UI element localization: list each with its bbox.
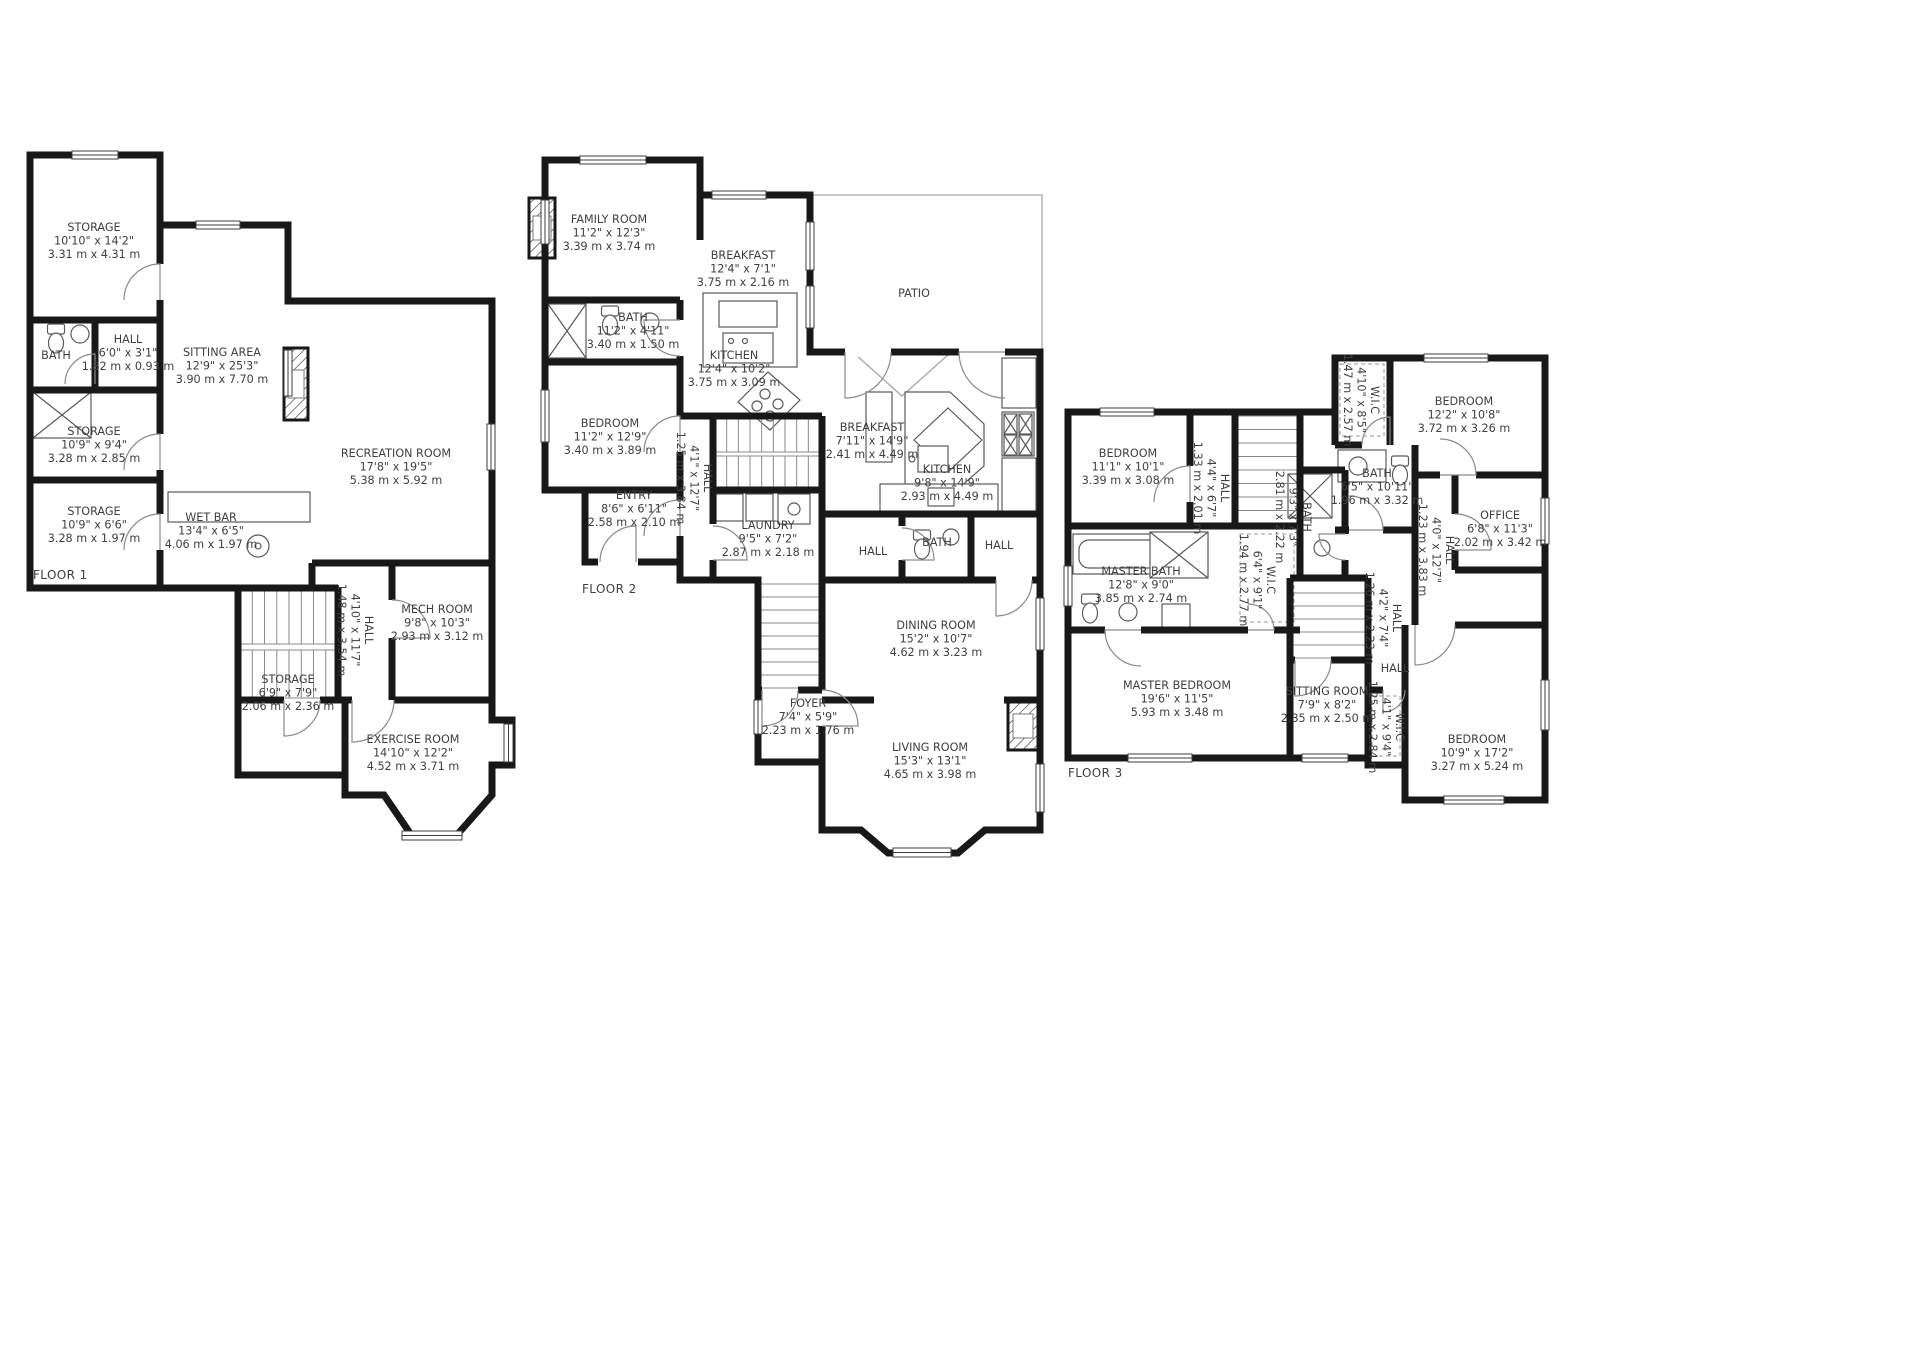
room-label-line: 7'9" x 8'2" bbox=[1298, 699, 1357, 712]
room-label-line: PATIO bbox=[898, 287, 930, 300]
room-label-line: 6'8" x 11'3" bbox=[1467, 523, 1533, 536]
room-label-line: LIVING ROOM bbox=[892, 741, 968, 754]
room-label-line: 15'2" x 10'7" bbox=[900, 633, 973, 646]
room-label-line: 11'1" x 10'1" bbox=[1092, 461, 1165, 474]
room-label-line: 4'2" x 7'4" bbox=[1377, 589, 1390, 648]
room-label-line: 11'2" x 12'3" bbox=[573, 227, 646, 240]
room-label-line: 6'4" x 9'1" bbox=[1251, 551, 1264, 610]
room-label-line: 10'9" x 6'6" bbox=[61, 519, 127, 532]
floor-2-label: FLOOR 2 bbox=[582, 582, 637, 596]
room-label-line: FAMILY ROOM bbox=[571, 213, 647, 226]
room-label-line: 2.93 m x 3.12 m bbox=[391, 630, 483, 643]
room-label-line: BATH bbox=[41, 349, 71, 362]
room-label-f3-office: OFFICE6'8" x 11'3"2.02 m x 3.42 m bbox=[1454, 509, 1546, 549]
room-label-line: 4.62 m x 3.23 m bbox=[890, 646, 982, 659]
room-label-line: EXERCISE ROOM bbox=[367, 733, 460, 746]
room-label-line: 5.38 m x 5.92 m bbox=[350, 474, 442, 487]
room-label-line: 4.52 m x 3.71 m bbox=[367, 760, 459, 773]
room-label-line: 9'8" x 14'9" bbox=[914, 477, 980, 490]
room-label-f2-breakfast-b: BREAKFAST7'11" x 14'9"2.41 m x 4.49 m bbox=[826, 421, 918, 461]
room-label-f3-bedroom-c: BEDROOM10'9" x 17'2"3.27 m x 5.24 m bbox=[1431, 733, 1523, 773]
room-label-line: 1.25 m x 3.84 m bbox=[674, 432, 687, 524]
room-label-line: HALL bbox=[701, 464, 714, 493]
room-label-line: 4'10" x 8'5" bbox=[1355, 367, 1368, 433]
room-label-f1-sitting: SITTING AREA12'9" x 25'3"3.90 m x 7.70 m bbox=[176, 346, 268, 386]
room-label-line: BEDROOM bbox=[581, 417, 639, 430]
room-label-line: BATH bbox=[618, 311, 648, 324]
room-label-line: 9'8" x 10'3" bbox=[404, 617, 470, 630]
room-label-line: 3.75 m x 3.09 m bbox=[688, 376, 780, 389]
room-label-line: 9'5" x 7'2" bbox=[739, 533, 798, 546]
room-label-line: HALL bbox=[1381, 662, 1410, 675]
room-label-line: 17'8" x 19'5" bbox=[360, 461, 433, 474]
room-label-line: 6'0" x 3'1" bbox=[99, 347, 158, 360]
room-label-line: 4.65 m x 3.98 m bbox=[884, 768, 976, 781]
room-label-line: ENTRY bbox=[616, 489, 652, 502]
room-label-line: 7'11" x 14'9" bbox=[836, 435, 909, 448]
room-label-line: 3.39 m x 3.08 m bbox=[1082, 474, 1174, 487]
room-label-line: HALL bbox=[985, 539, 1014, 552]
room-label-f2-breakfast-a: BREAKFAST12'4" x 7'1"3.75 m x 2.16 m bbox=[697, 249, 789, 289]
room-label-line: 2.81 m x 2.22 m bbox=[1273, 471, 1286, 563]
room-label-line: 2.87 m x 2.18 m bbox=[722, 546, 814, 559]
room-label-line: RECREATION ROOM bbox=[341, 447, 451, 460]
room-label-f2-entry: ENTRY8'6" x 6'11"2.58 m x 2.10 m bbox=[588, 489, 680, 529]
room-label-f1-storage-c: STORAGE10'9" x 6'6"3.28 m x 1.97 m bbox=[48, 505, 140, 545]
room-label-line: STORAGE bbox=[261, 673, 314, 686]
room-label-line: W.I.C bbox=[1264, 566, 1277, 594]
room-label-f3-bedroom-a: BEDROOM11'1" x 10'1"3.39 m x 3.08 m bbox=[1082, 447, 1174, 487]
room-label-f2-bath-b: BATH bbox=[922, 536, 952, 549]
room-label-line: 10'9" x 17'2" bbox=[1441, 747, 1514, 760]
room-label-f3-bedroom-b: BEDROOM12'2" x 10'8"3.72 m x 3.26 m bbox=[1418, 395, 1510, 435]
room-label-f3-wic-b: W.I.C6'4" x 9'1"1.94 m x 2.77 m bbox=[1237, 534, 1277, 626]
room-label-line: 2.23 m x 1.76 m bbox=[762, 724, 854, 737]
room-label-line: MASTER BATH bbox=[1101, 565, 1180, 578]
room-label-line: W.I.C bbox=[1393, 713, 1406, 741]
room-label-line: 2.93 m x 4.49 m bbox=[901, 490, 993, 503]
room-label-line: 12'8" x 9'0" bbox=[1108, 579, 1174, 592]
room-label-line: 11'2" x 12'9" bbox=[574, 431, 647, 444]
room-label-f2-dining: DINING ROOM15'2" x 10'7"4.62 m x 3.23 m bbox=[890, 619, 982, 659]
room-label-line: 9'3" x 7'3" bbox=[1287, 488, 1300, 547]
room-label-line: 3.28 m x 2.85 m bbox=[48, 452, 140, 465]
room-label-line: 14'10" x 12'2" bbox=[373, 747, 453, 760]
room-label-line: KITCHEN bbox=[923, 463, 971, 476]
room-label-line: HALL bbox=[1443, 536, 1456, 565]
room-label-line: FOYER bbox=[790, 697, 827, 710]
room-label-line: 3.31 m x 4.31 m bbox=[48, 248, 140, 261]
room-label-line: 4'4" x 6'7" bbox=[1205, 459, 1218, 518]
room-label-line: 3.85 m x 2.74 m bbox=[1095, 592, 1187, 605]
room-label-line: 4'1" x 12'7" bbox=[688, 445, 701, 511]
room-label-f1-hall-b: HALL4'10" x 11'7"1.48 m x 3.54 m bbox=[335, 584, 375, 676]
room-label-line: MECH ROOM bbox=[401, 603, 473, 616]
room-label-line: HALL bbox=[362, 616, 375, 645]
room-label-line: 1.33 m x 2.01 m bbox=[1191, 442, 1204, 534]
room-label-line: BATH bbox=[1362, 467, 1392, 480]
room-label-f3-master-bath: MASTER BATH12'8" x 9'0"3.85 m x 2.74 m bbox=[1095, 565, 1187, 605]
room-label-f2-patio: PATIO bbox=[898, 287, 930, 300]
room-label-line: 1.25 m x 2.84 m bbox=[1366, 681, 1379, 773]
room-label-line: 1.23 m x 3.83 m bbox=[1416, 504, 1429, 596]
room-label-line: HALL bbox=[859, 545, 888, 558]
room-label-line: BREAKFAST bbox=[711, 249, 776, 262]
room-label-line: BATH bbox=[922, 536, 952, 549]
room-label-line: STORAGE bbox=[67, 505, 120, 518]
room-label-line: 4'1" x 9'4" bbox=[1380, 698, 1393, 757]
room-label-line: BEDROOM bbox=[1099, 447, 1157, 460]
room-label-f3-hall-a: HALL4'4" x 6'7"1.33 m x 2.01 m bbox=[1191, 442, 1231, 534]
room-label-line: SITTING AREA bbox=[183, 346, 261, 359]
room-label-line: 3.40 m x 1.50 m bbox=[587, 338, 679, 351]
room-label-line: OFFICE bbox=[1480, 509, 1520, 522]
room-label-line: 4.06 m x 1.97 m bbox=[165, 538, 257, 551]
room-label-line: 3.27 m x 5.24 m bbox=[1431, 760, 1523, 773]
room-label-f1-storage-a: STORAGE10'10" x 14'2"3.31 m x 4.31 m bbox=[48, 221, 140, 261]
room-label-line: 8'6" x 6'11" bbox=[601, 503, 667, 516]
floor-3-label: FLOOR 3 bbox=[1068, 766, 1123, 780]
room-label-line: HALL bbox=[1390, 604, 1403, 633]
room-label-line: 12'9" x 25'3" bbox=[186, 360, 259, 373]
room-label-line: 1.47 m x 2.57 m bbox=[1341, 354, 1354, 446]
room-label-line: HALL bbox=[1218, 474, 1231, 503]
room-label-line: 12'2" x 10'8" bbox=[1428, 409, 1501, 422]
room-label-line: 2.06 m x 2.36 m bbox=[242, 700, 334, 713]
room-label-f3-sitting: SITTING ROOM7'9" x 8'2"2.35 m x 2.50 m bbox=[1281, 685, 1373, 725]
room-label-line: BATH bbox=[1300, 502, 1313, 532]
room-label-line: KITCHEN bbox=[710, 349, 758, 362]
room-label-line: 12'4" x 10'2" bbox=[698, 363, 771, 376]
room-label-f2-hall-a: HALL bbox=[859, 545, 888, 558]
room-label-f2-hall-b: HALL bbox=[985, 539, 1014, 552]
room-label-f1-exercise: EXERCISE ROOM14'10" x 12'2"4.52 m x 3.71… bbox=[367, 733, 460, 773]
room-label-f2-living: LIVING ROOM15'3" x 13'1"4.65 m x 3.98 m bbox=[884, 741, 976, 781]
room-label-line: 2.41 m x 4.49 m bbox=[826, 448, 918, 461]
room-label-line: MASTER BEDROOM bbox=[1123, 679, 1231, 692]
room-label-f2-family: FAMILY ROOM11'2" x 12'3"3.39 m x 3.74 m bbox=[563, 213, 655, 253]
room-label-line: HALL bbox=[114, 333, 143, 346]
room-label-line: 10'9" x 9'4" bbox=[61, 439, 127, 452]
room-label-f2-laundry: LAUNDRY9'5" x 7'2"2.87 m x 2.18 m bbox=[722, 519, 814, 559]
room-label-line: 3.75 m x 2.16 m bbox=[697, 276, 789, 289]
room-label-line: STORAGE bbox=[67, 221, 120, 234]
room-label-line: DINING ROOM bbox=[896, 619, 975, 632]
room-label-line: 2.35 m x 2.50 m bbox=[1281, 712, 1373, 725]
room-label-line: 5.93 m x 3.48 m bbox=[1131, 706, 1223, 719]
room-label-line: BEDROOM bbox=[1435, 395, 1493, 408]
room-label-f3-hall-c: HALL4'2" x 7'4"1.26 m x 2.23 m bbox=[1363, 572, 1403, 664]
room-label-f2-hall-v: HALL4'1" x 12'7"1.25 m x 3.84 m bbox=[674, 432, 714, 524]
room-label-line: 3.28 m x 1.97 m bbox=[48, 532, 140, 545]
room-label-f3-wic-c: W.I.C4'1" x 9'4"1.25 m x 2.84 m bbox=[1366, 681, 1406, 773]
room-label-line: 2.02 m x 3.42 m bbox=[1454, 536, 1546, 549]
room-label-line: 3.90 m x 7.70 m bbox=[176, 373, 268, 386]
room-label-line: BEDROOM bbox=[1448, 733, 1506, 746]
floorplan-document: FLOOR 1 FLOOR 2 FLOOR 3 STORAGE10'10" x … bbox=[0, 0, 1920, 1358]
room-label-line: 10'10" x 14'2" bbox=[54, 235, 134, 248]
room-label-f1-storage-d: STORAGE6'9" x 7'9"2.06 m x 2.36 m bbox=[242, 673, 334, 713]
room-label-line: 7'4" x 5'9" bbox=[779, 711, 838, 724]
room-label-line: BREAKFAST bbox=[840, 421, 905, 434]
room-label-line: W.I.C bbox=[1368, 386, 1381, 414]
room-label-line: 4'10" x 11'7" bbox=[349, 594, 362, 667]
room-label-line: 1.96 m x 3.32 m bbox=[1331, 494, 1423, 507]
room-label-f3-wic-a: W.I.C4'10" x 8'5"1.47 m x 2.57 m bbox=[1341, 354, 1381, 446]
room-label-line: 11'2" x 4'11" bbox=[597, 325, 670, 338]
floor-1-label: FLOOR 1 bbox=[33, 568, 88, 582]
room-label-f1-mech: MECH ROOM9'8" x 10'3"2.93 m x 3.12 m bbox=[391, 603, 483, 643]
room-label-f1-bath: BATH bbox=[41, 349, 71, 362]
room-label-line: 3.72 m x 3.26 m bbox=[1418, 422, 1510, 435]
room-label-line: 3.39 m x 3.74 m bbox=[563, 240, 655, 253]
room-label-line: 6'5" x 10'11" bbox=[1341, 481, 1414, 494]
room-label-line: 2.58 m x 2.10 m bbox=[588, 516, 680, 529]
room-label-f3-hall-b: HALL4'0" x 12'7"1.23 m x 3.83 m bbox=[1416, 504, 1456, 596]
room-label-line: 13'4" x 6'5" bbox=[178, 525, 244, 538]
room-label-line: LAUNDRY bbox=[741, 519, 794, 532]
floorplan-svg: FLOOR 1 FLOOR 2 FLOOR 3 STORAGE10'10" x … bbox=[0, 0, 1920, 1358]
room-label-line: WET BAR bbox=[185, 511, 237, 524]
room-label-line: 1.94 m x 2.77 m bbox=[1237, 534, 1250, 626]
room-label-line: 1.82 m x 0.93 m bbox=[82, 360, 174, 373]
room-label-line: STORAGE bbox=[67, 425, 120, 438]
room-label-line: 1.48 m x 3.54 m bbox=[335, 584, 348, 676]
room-label-f3-hall-d: HALL bbox=[1381, 662, 1410, 675]
page: { "floors": [ { "label": "FLOOR 1", "roo… bbox=[0, 0, 1920, 1358]
room-label-f3-master-bedroom: MASTER BEDROOM19'6" x 11'5"5.93 m x 3.48… bbox=[1123, 679, 1231, 719]
room-label-line: 12'4" x 7'1" bbox=[710, 263, 776, 276]
room-label-line: 4'0" x 12'7" bbox=[1430, 517, 1443, 583]
room-label-line: 15'3" x 13'1" bbox=[894, 755, 967, 768]
room-label-line: 1.26 m x 2.23 m bbox=[1363, 572, 1376, 664]
room-label-line: 3.40 m x 3.89 m bbox=[564, 444, 656, 457]
room-label-f1-recreation: RECREATION ROOM17'8" x 19'5"5.38 m x 5.9… bbox=[341, 447, 451, 487]
room-label-line: 6'9" x 7'9" bbox=[259, 687, 318, 700]
room-label-line: SITTING ROOM bbox=[1286, 685, 1369, 698]
room-label-line: 19'6" x 11'5" bbox=[1141, 693, 1214, 706]
room-label-f2-bedroom: BEDROOM11'2" x 12'9"3.40 m x 3.89 m bbox=[564, 417, 656, 457]
room-label-f2-bath-a: BATH11'2" x 4'11"3.40 m x 1.50 m bbox=[587, 311, 679, 351]
